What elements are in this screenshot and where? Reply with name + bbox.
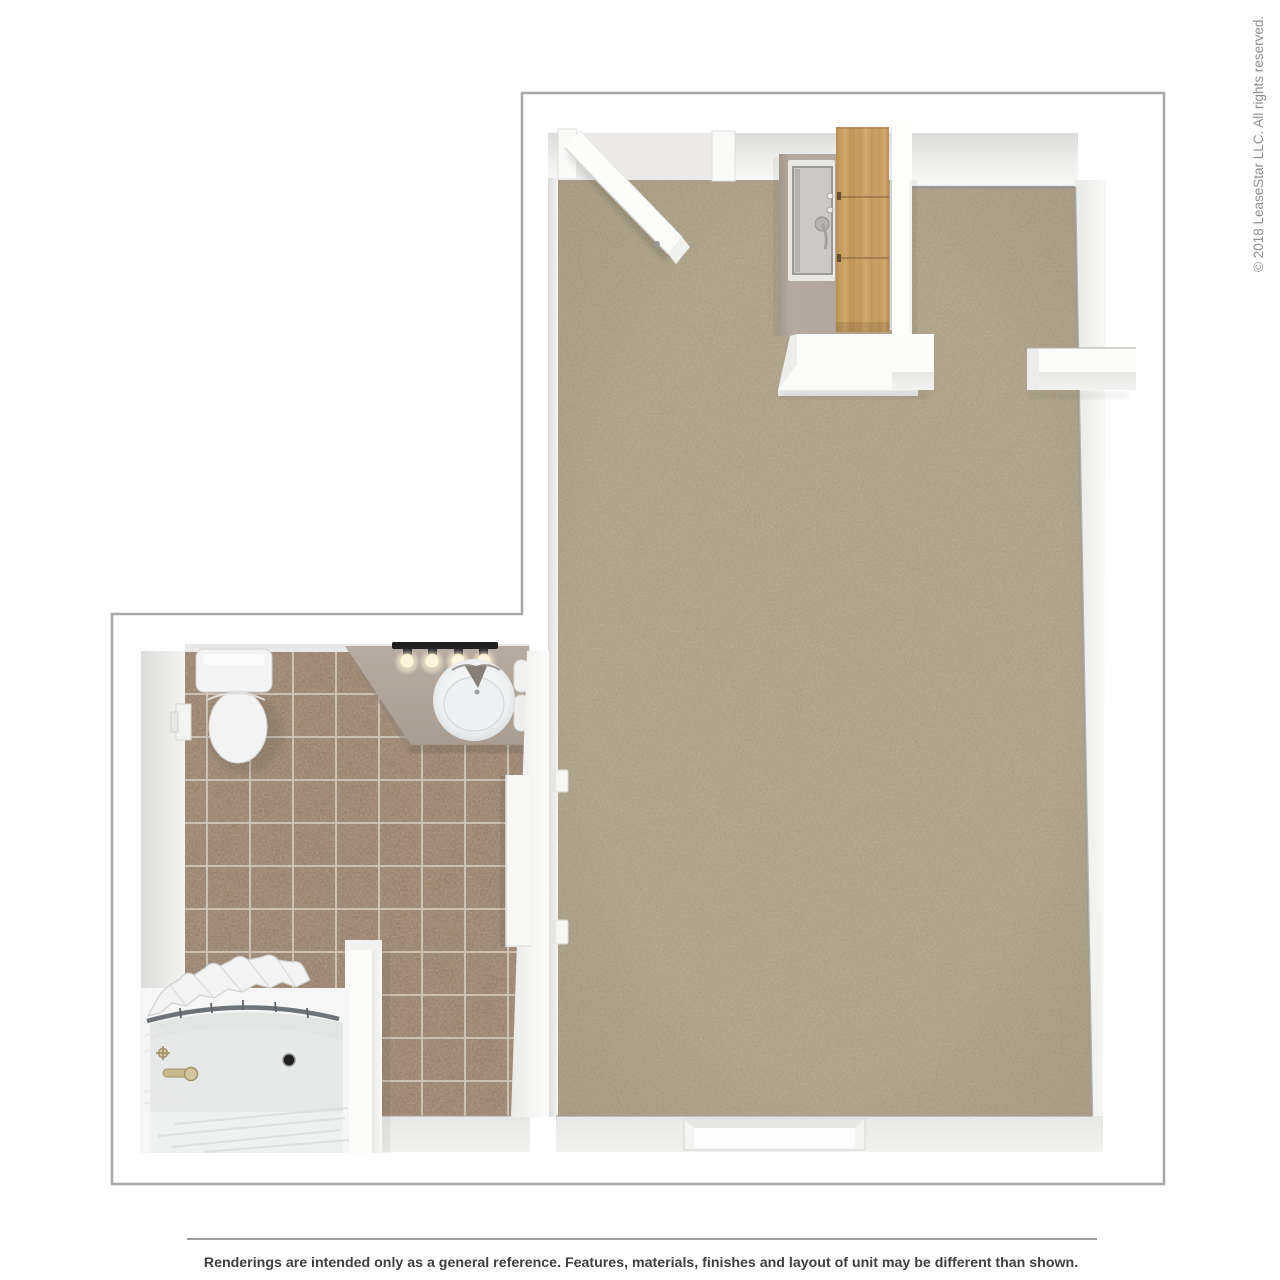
svg-text:Renderings are intended only a: Renderings are intended only as a genera…	[204, 1255, 1078, 1271]
svg-text:© 2018 LeaseStar LLC. All righ: © 2018 LeaseStar LLC. All rights reserve…	[1251, 16, 1266, 272]
